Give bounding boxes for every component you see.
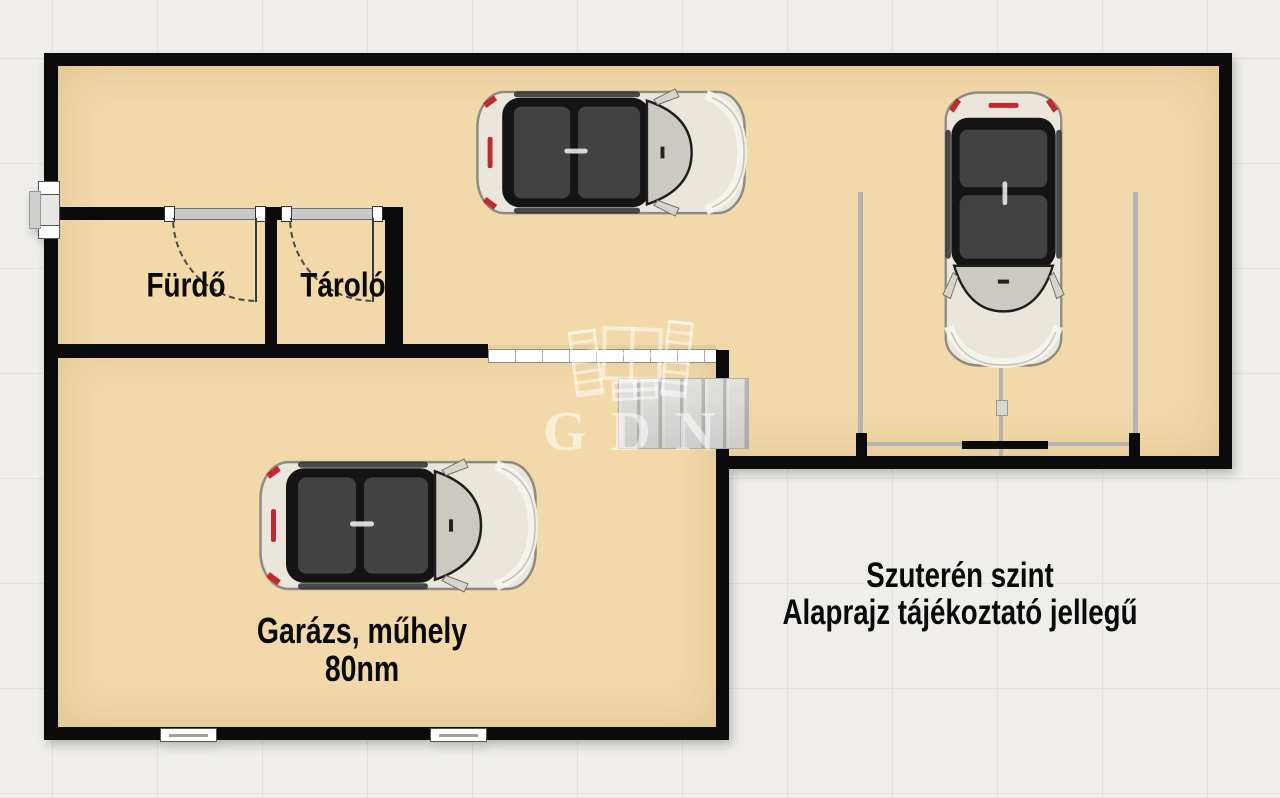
floor-plan: Fürdő Tároló Garázs, műhely 80nm Szuteré… bbox=[0, 0, 1280, 798]
garage-label-text: Garázs, műhely bbox=[257, 612, 467, 650]
parking-room-bottom-wall bbox=[716, 456, 1232, 469]
rooms-top-wall-left bbox=[58, 207, 170, 220]
building bbox=[0, 0, 1280, 798]
storage-right-wall bbox=[385, 207, 403, 358]
garage-area-text: 80nm bbox=[257, 650, 467, 688]
room-label-garage: Garázs, műhely 80nm bbox=[257, 612, 467, 688]
rooms-bottom-wall bbox=[44, 344, 488, 358]
garage-car-icon bbox=[258, 458, 538, 593]
annotation-line1: Szuterén szint bbox=[783, 557, 1138, 594]
bathroom-storage-partition-wall bbox=[265, 207, 277, 358]
parking-car-icon bbox=[942, 90, 1065, 368]
parking-stop-bar bbox=[962, 441, 1048, 449]
annotation-line2: Alaprajz tájékoztató jellegű bbox=[783, 594, 1138, 631]
parking-stop-cap-right bbox=[1129, 433, 1140, 456]
left-wall-window-pane bbox=[29, 191, 41, 229]
room-label-bathroom: Fürdő bbox=[147, 267, 226, 306]
outer-wall-right bbox=[1219, 53, 1232, 469]
hall-car-icon bbox=[475, 88, 747, 217]
parking-line-left bbox=[858, 192, 863, 444]
outer-wall-top bbox=[44, 53, 1232, 66]
parking-center-sleeve bbox=[996, 400, 1008, 416]
plan-annotation: Szuterén szint Alaprajz tájékoztató jell… bbox=[783, 557, 1138, 631]
garage-window-1 bbox=[160, 728, 217, 742]
glazed-partition bbox=[488, 349, 718, 363]
staircase bbox=[618, 378, 749, 449]
bathroom-door-leaf bbox=[255, 218, 257, 302]
parking-line-right bbox=[1133, 192, 1138, 444]
room-label-storage: Tároló bbox=[300, 267, 385, 306]
outer-wall-left bbox=[44, 53, 58, 740]
garage-bottom-wall bbox=[44, 727, 729, 740]
left-wall-window-cap-top bbox=[38, 181, 60, 195]
parking-stop-cap-left bbox=[856, 433, 867, 456]
left-wall-window-cap-bottom bbox=[38, 225, 60, 239]
garage-window-2 bbox=[430, 728, 487, 742]
